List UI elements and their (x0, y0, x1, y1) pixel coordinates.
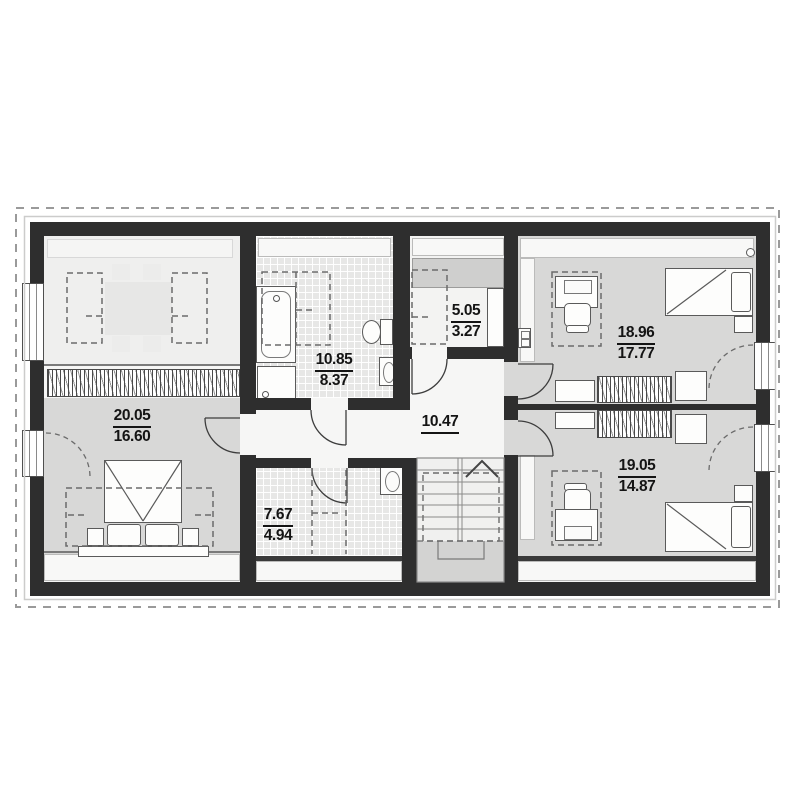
knee-shelf (518, 561, 756, 581)
knee-line (518, 556, 756, 561)
area-label-bedroom-left: 20.05 16.60 (104, 407, 160, 446)
area-usable: 16.60 (114, 428, 151, 445)
door-niche-top (504, 362, 518, 398)
pillow (731, 272, 751, 312)
knee-shelf (44, 554, 240, 581)
area-total: 5.05 (451, 302, 482, 323)
chair-silhouette (112, 264, 130, 280)
chair-silhouette (112, 336, 130, 352)
radiator-fin (521, 339, 530, 347)
wardrobe-rail (597, 410, 672, 438)
partition-line (44, 364, 240, 366)
wall (504, 396, 518, 420)
area-label-bedroom-right-bottom: 19.05 14.87 (609, 457, 665, 496)
stairs-treads-floor (417, 458, 504, 541)
wardrobe-cabinet (675, 414, 707, 444)
partition-wall (518, 404, 756, 410)
washbasin-bowl (385, 471, 400, 492)
bed-headboard (78, 546, 209, 557)
window (754, 424, 776, 472)
wardrobe-cabinet (555, 380, 595, 402)
area-label-storage: 5.05 3.27 (438, 302, 494, 341)
ceiling-point (746, 248, 755, 257)
area-usable: 17.77 (618, 345, 655, 362)
chair-silhouette (143, 264, 161, 280)
pillow (107, 524, 141, 546)
area-usable: 14.87 (619, 478, 656, 495)
wardrobe-cabinet (555, 412, 595, 429)
desk-drawer (564, 526, 592, 540)
area-total: 7.67 (263, 506, 294, 527)
wall (504, 455, 518, 582)
stairs-landing-floor (417, 541, 504, 582)
wardrobe-cabinet (675, 371, 707, 401)
wardrobe-rail (597, 376, 672, 403)
window (22, 430, 44, 477)
knee-shelf (258, 238, 391, 257)
floor-plan: 20.05 16.60 10.85 8.37 5.05 3.27 10.47 1… (0, 0, 800, 800)
wall (402, 458, 417, 582)
area-total: 20.05 (113, 407, 152, 428)
area-total: 10.47 (421, 413, 460, 434)
area-usable: 3.27 (452, 323, 481, 340)
chair-silhouette (143, 336, 161, 352)
window (754, 342, 776, 390)
double-bed (104, 460, 182, 523)
radiator (518, 328, 531, 348)
area-usable: 4.94 (264, 527, 293, 544)
hall-floor-right (410, 359, 504, 458)
washer-knob (262, 391, 269, 398)
area-label-bedroom-right-top: 18.96 17.77 (608, 324, 664, 363)
wardrobe-rail (47, 369, 240, 397)
area-label-bathroom-main: 10.85 8.37 (306, 351, 362, 390)
nightstand (87, 528, 104, 546)
nightstand (734, 485, 753, 502)
wall (504, 236, 518, 362)
chair-backrest (566, 325, 589, 333)
desk (555, 509, 598, 541)
knee-shelf (412, 238, 504, 256)
knee-shelf (520, 238, 754, 258)
area-total: 18.96 (617, 324, 656, 345)
storage-shelf (412, 258, 504, 288)
area-total: 19.05 (618, 457, 657, 478)
bathtub (256, 286, 296, 363)
washing-machine (257, 366, 296, 401)
nightstand (182, 528, 199, 546)
pillow (145, 524, 179, 546)
bathtub-drain (273, 295, 280, 302)
radiator-fin (521, 331, 530, 339)
pillow (731, 506, 751, 548)
knee-line (256, 556, 402, 561)
knee-shelf (256, 561, 402, 581)
nightstand (734, 316, 753, 333)
wall (348, 458, 417, 468)
desk-drawer (564, 280, 592, 294)
area-usable: 8.37 (320, 372, 349, 389)
wall (393, 236, 410, 410)
area-label-hall: 10.47 (412, 413, 468, 434)
wall (240, 458, 311, 468)
toilet-bowl (362, 320, 381, 344)
wall (240, 236, 256, 414)
hall-floor (256, 410, 417, 458)
knee-shelf (520, 455, 535, 540)
door-niche-bottom (504, 420, 518, 456)
knee-shelf (47, 239, 233, 258)
wall (393, 347, 412, 359)
washbasin (380, 466, 403, 495)
wall (240, 398, 311, 410)
window (22, 283, 44, 361)
toilet-tank (380, 319, 393, 345)
desk-chair (564, 303, 591, 327)
area-total: 10.85 (315, 351, 354, 372)
table-silhouette (105, 282, 172, 335)
area-label-bathroom-small: 7.67 4.94 (250, 506, 306, 545)
